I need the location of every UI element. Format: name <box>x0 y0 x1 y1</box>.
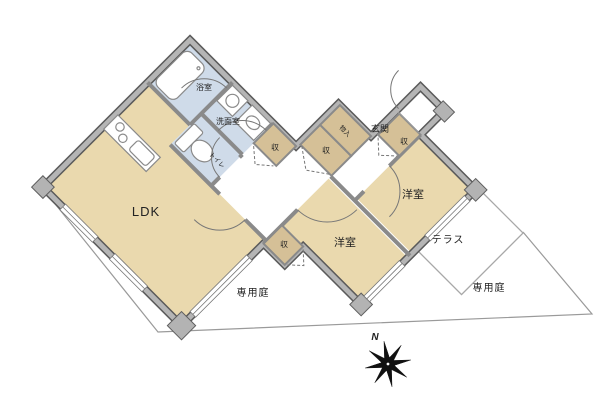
north-label: N <box>371 332 379 343</box>
bedroom-lower-label: 洋室 <box>334 235 356 249</box>
bath-label: 浴室 <box>196 82 212 92</box>
garden-right-label: 専用庭 <box>473 281 506 294</box>
bedroom-right-label: 洋室 <box>402 187 424 201</box>
storage-bedroom-lower-label: 収 <box>280 239 288 249</box>
ldk-label: LDK <box>132 204 160 219</box>
storage-bedroom-right-label: 収 <box>400 136 408 146</box>
floorplan-page: トイレ 物入 LDK 浴室 洗面室 収 収 玄関 収 洋室 洋室 収 テラス 専… <box>0 0 605 408</box>
storage-hall-1-label: 収 <box>271 142 279 152</box>
compass-rose: N <box>365 332 410 387</box>
entrance-label: 玄関 <box>371 123 389 134</box>
storage-hall-2-label: 収 <box>322 145 330 155</box>
garden-left-label: 専用庭 <box>237 286 270 299</box>
terrace-label: テラス <box>432 234 465 246</box>
washroom-label: 洗面室 <box>216 116 240 126</box>
bath-faucet <box>196 66 200 70</box>
compass-center <box>387 363 390 366</box>
building-unit: トイレ 物入 <box>30 0 549 408</box>
floorplan-canvas: トイレ 物入 LDK 浴室 洗面室 収 収 玄関 収 洋室 洋室 収 テラス 専… <box>0 0 605 408</box>
